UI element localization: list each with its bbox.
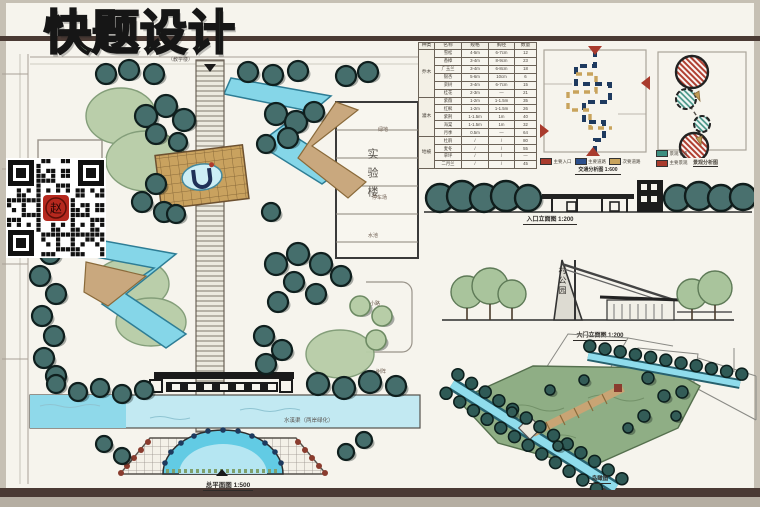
water-label: 水溪渠（两岸绿化） — [284, 416, 334, 424]
table-header: 规格 — [462, 43, 489, 50]
perspective-caption: 鸟瞰图 — [560, 474, 640, 484]
legend-swatch — [540, 158, 552, 165]
table-cell: 2-3m — [462, 89, 489, 97]
table-cell: 21 — [515, 89, 537, 97]
table-cell: 6-7cm — [489, 50, 515, 58]
gate-sign: 村公园 — [557, 266, 568, 296]
gate-elevation-drawing — [442, 256, 738, 334]
table-cell: 3-4m — [462, 65, 489, 73]
table-row: 栾树3-4m6-7cm15 — [419, 81, 537, 89]
table-row: 草坪//— — [419, 152, 537, 160]
landscape-analysis-diagram — [652, 44, 752, 158]
table-row: 月季0.5m—64 — [419, 129, 537, 137]
table-cell: — — [489, 129, 515, 137]
plan-caption: 总平面图 1:500 — [168, 479, 288, 491]
table-cell: 64 — [515, 129, 537, 137]
table-row: 乔木雪松4-5m6-7cm12 — [419, 50, 537, 58]
table-header-row: 种类 名称 规格 胸径 数量 — [419, 43, 537, 50]
board-title: 快题设计 — [44, 0, 236, 63]
landscape-nodes — [676, 56, 710, 158]
table-cell: / — [489, 137, 515, 145]
table-group-cell: 乔木 — [419, 50, 435, 98]
table-cell: 1m — [489, 113, 515, 121]
table-cell: 紫荆 — [435, 113, 462, 121]
table-cell: 15 — [515, 81, 537, 89]
legend-item: 主要道路 — [575, 158, 607, 165]
table-cell: 4-5m — [462, 50, 489, 58]
gate-trees-right — [677, 271, 732, 309]
table-row: 紫荆1-1.5m1m40 — [419, 113, 537, 121]
table-cell: — — [489, 89, 515, 97]
table-cell: 6-8cm — [489, 65, 515, 73]
table-row: 桂花2-3m—21 — [419, 89, 537, 97]
plan-annotation: 绿地 — [378, 126, 388, 133]
landscape-caption: 景观分析图 — [693, 159, 718, 167]
table-cell: 紫薇 — [435, 97, 462, 105]
table-cell: 海棠 — [435, 121, 462, 129]
fan-plaza — [118, 427, 328, 476]
table-cell: 18 — [515, 65, 537, 73]
table-cell: 红枫 — [435, 105, 462, 113]
table-cell: 1-2m — [462, 105, 489, 113]
table-cell: 5-6m — [462, 73, 489, 81]
qr-center-seal: 赵 — [43, 195, 69, 221]
table-cell: 26 — [515, 105, 537, 113]
elevation1-caption: 入口立面图 1:200 — [470, 214, 630, 225]
table-group-cell: 灌木 — [419, 97, 435, 137]
table-row: 地被杜鹃//80 — [419, 137, 537, 145]
table-cell: / — [489, 152, 515, 160]
table-cell: 6 — [515, 73, 537, 81]
legend-swatch — [609, 158, 621, 165]
table-cell: 8-9cm — [489, 57, 515, 65]
table-cell: / — [462, 137, 489, 145]
table-row: 灌木紫薇1-2m1-1.5m35 — [419, 97, 537, 105]
table-cell: 55 — [515, 145, 537, 153]
primary-route — [576, 50, 610, 154]
table-cell: 40 — [515, 113, 537, 121]
table-cell: 45 — [515, 160, 537, 168]
plan-annotation: 树阵 — [376, 368, 386, 375]
table-cell: 1-1.5m — [489, 105, 515, 113]
table-cell: / — [489, 160, 515, 168]
table-cell: 35 — [515, 97, 537, 105]
table-header: 数量 — [515, 43, 537, 50]
table-cell: 1-1.5m — [489, 97, 515, 105]
river — [30, 395, 420, 428]
table-row: 广玉兰3-4m6-8cm18 — [419, 65, 537, 73]
table-cell: 1-1.5m — [462, 113, 489, 121]
table-cell: 雪松 — [435, 50, 462, 58]
table-cell: 3-4m — [462, 81, 489, 89]
gate-trees-left — [451, 268, 526, 308]
table-cell: / — [462, 152, 489, 160]
table-cell: — — [515, 152, 537, 160]
traffic-analysis-diagram — [538, 44, 652, 158]
presentation-board: 快题设计 — [0, 0, 760, 507]
central-plaza — [155, 145, 249, 209]
table-cell: 1m — [489, 121, 515, 129]
table-cell: 杜鹃 — [435, 137, 462, 145]
table-cell: 月季 — [435, 129, 462, 137]
table-cell: / — [462, 145, 489, 153]
gate-pergola — [150, 372, 294, 392]
table-cell: 银杏 — [435, 73, 462, 81]
legend-item: 主要入口 — [540, 158, 572, 165]
table-cell: 栾树 — [435, 81, 462, 89]
table-cell: 80 — [515, 137, 537, 145]
table-row: 海棠1-1.5m1m32 — [419, 121, 537, 129]
table-group-cell: 地被 — [419, 137, 435, 169]
legend-item: 次要道路 — [609, 158, 641, 165]
table-header: 名称 — [435, 43, 462, 50]
plant-schedule-table: 种类 名称 规格 胸径 数量 乔木雪松4-5m6-7cm12香樟3-4m8-9c… — [418, 42, 536, 169]
table-cell: 香樟 — [435, 57, 462, 65]
table-header: 胸径 — [489, 43, 515, 50]
table-cell: 12 — [515, 50, 537, 58]
table-cell: 草坪 — [435, 152, 462, 160]
table-row: 红枫1-2m1-1.5m26 — [419, 105, 537, 113]
table-row: 二月兰//45 — [419, 160, 537, 168]
plan-annotation: 小路 — [370, 300, 380, 307]
table-cell: 二月兰 — [435, 160, 462, 168]
legend-swatch — [656, 160, 668, 167]
landscape-legend: 景观节点 主要景观 景观分析图 — [656, 150, 718, 167]
table-header: 种类 — [419, 43, 435, 50]
plan-annotation: 停车场 — [372, 194, 387, 201]
master-plan-drawing — [0, 54, 430, 486]
table-cell: / — [489, 145, 515, 153]
traffic-legend: 主要入口 主要道路 次要道路 — [540, 158, 641, 165]
legend-swatch — [575, 158, 587, 165]
table-cell: 0.5m — [462, 129, 489, 137]
legend-item: 景观节点 — [656, 150, 688, 157]
photo-edge-bottom — [0, 497, 760, 507]
entrance-structure — [542, 180, 663, 212]
table-row: 麦冬//55 — [419, 145, 537, 153]
table-cell: 广玉兰 — [435, 65, 462, 73]
table-cell: 6-7cm — [489, 81, 515, 89]
plan-annotation: 水池 — [368, 232, 378, 239]
svg-text:赵: 赵 — [50, 202, 62, 216]
legend-swatch — [656, 150, 668, 157]
table-cell: / — [462, 160, 489, 168]
table-row: 香樟3-4m8-9cm23 — [419, 57, 537, 65]
table-cell: 3-4m — [462, 57, 489, 65]
table-row: 银杏5-6m10cm6 — [419, 73, 537, 81]
birdseye-perspective-drawing — [438, 328, 760, 490]
table-cell: 32 — [515, 121, 537, 129]
table-cell: 麦冬 — [435, 145, 462, 153]
table-cell: 桂花 — [435, 89, 462, 97]
legend-item: 主要景观 景观分析图 — [656, 159, 718, 167]
table-cell: 1-2m — [462, 97, 489, 105]
table-cell: 10cm — [489, 73, 515, 81]
qr-code: 赵 — [6, 158, 106, 258]
table-cell: 1-1.5m — [462, 121, 489, 129]
table-cell: 23 — [515, 57, 537, 65]
